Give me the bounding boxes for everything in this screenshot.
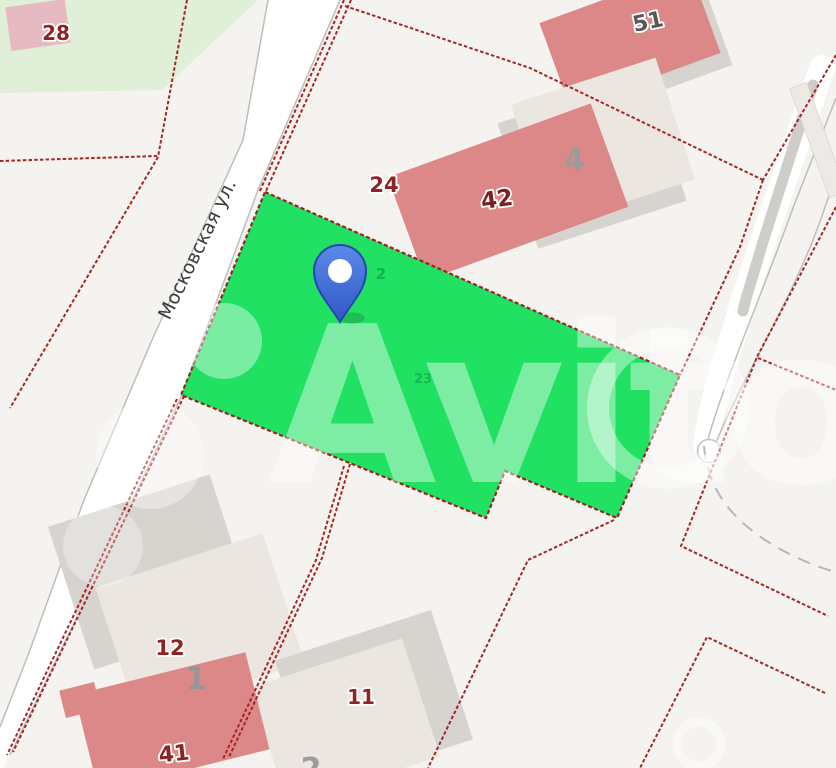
parcel-number-12: 12	[155, 636, 184, 660]
parcel-inner-label-2: 2	[376, 265, 386, 283]
map-canvas[interactable]: Avito 28 51 4 24 42 12 1 41 11 2 2 23 Мо…	[0, 0, 836, 768]
house-number-28: 28	[42, 21, 70, 45]
house-number-1: 1	[185, 661, 207, 697]
parcel-inner-label-23: 23	[414, 372, 432, 387]
house-number-41: 41	[158, 740, 191, 768]
pin-hole	[328, 259, 352, 283]
house-number-4: 4	[564, 143, 585, 178]
house-number-2-partial: 2	[301, 752, 322, 768]
parcel-number-24: 24	[369, 173, 398, 197]
house-number-42: 42	[479, 185, 514, 215]
watermark-dot	[63, 506, 143, 586]
cadastral-map[interactable]: Avito 28 51 4 24 42 12 1 41 11 2 2 23 Мо…	[0, 0, 836, 768]
watermark-dot	[96, 401, 204, 509]
house-number-11: 11	[347, 685, 375, 709]
watermark-dot	[186, 303, 262, 379]
